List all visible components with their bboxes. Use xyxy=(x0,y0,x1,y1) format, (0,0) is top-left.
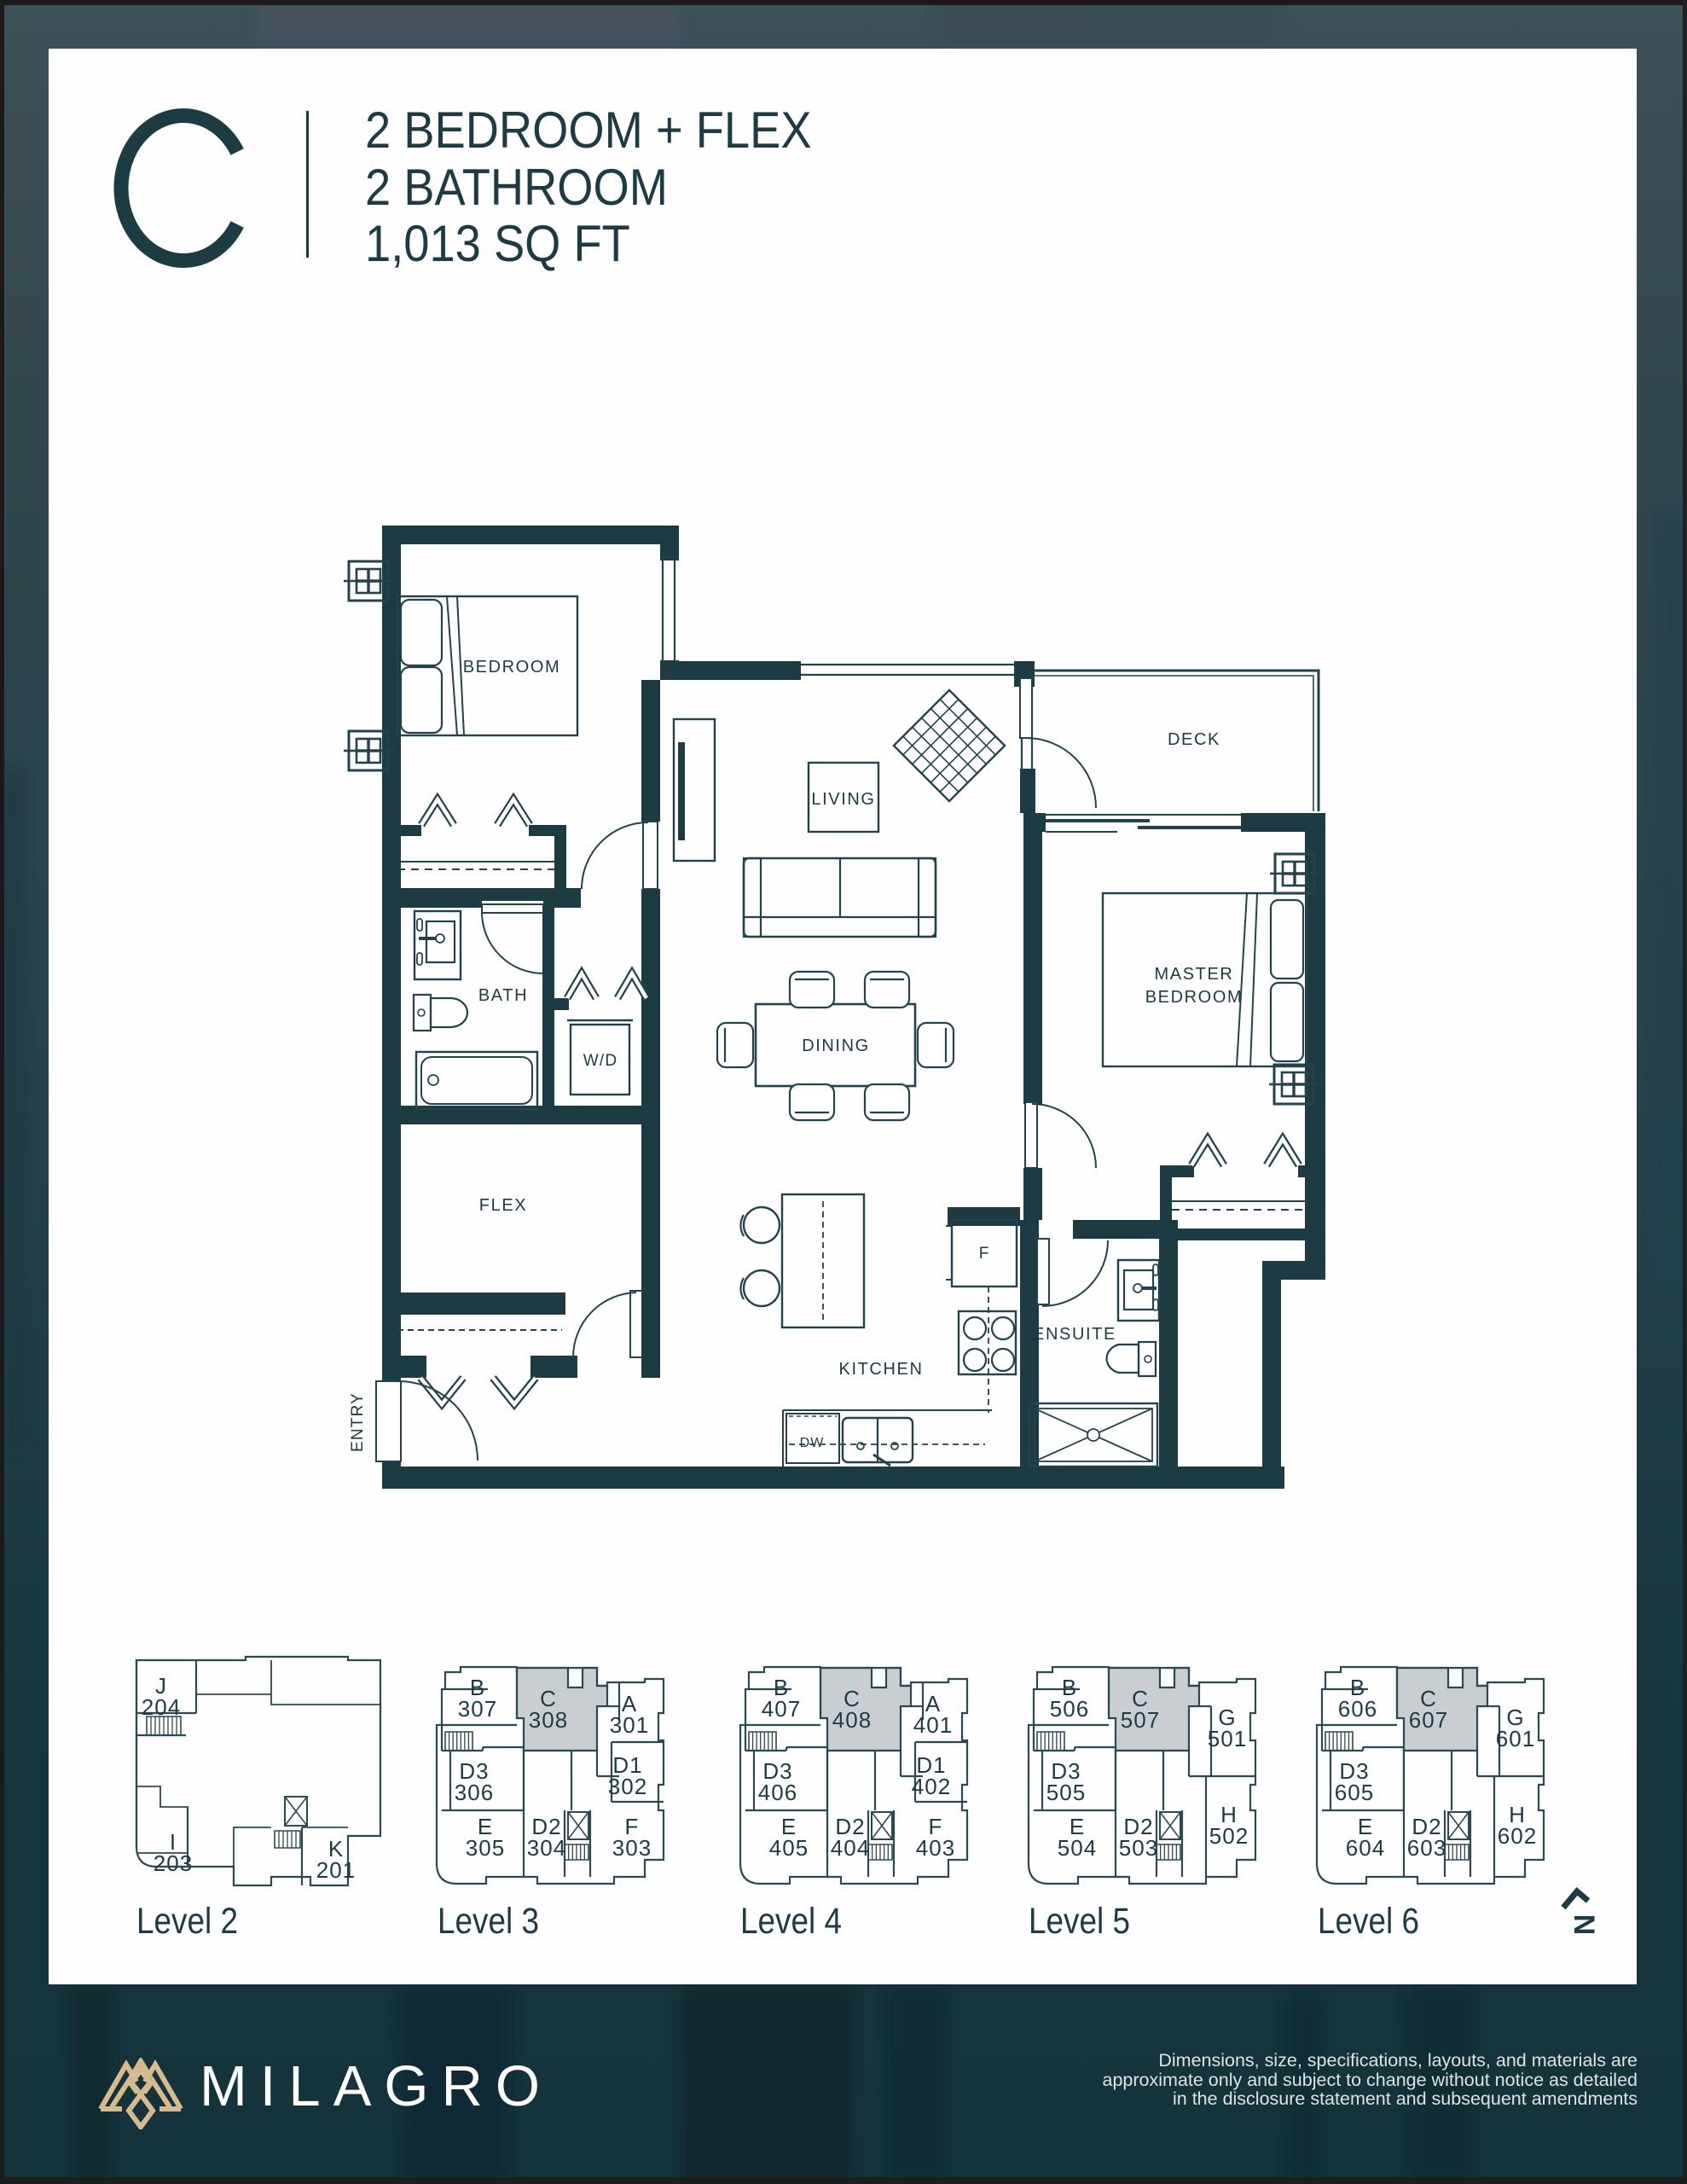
svg-text:306: 306 xyxy=(455,1780,494,1805)
svg-text:ENTRY: ENTRY xyxy=(349,1392,367,1452)
svg-text:201: 201 xyxy=(316,1857,356,1883)
svg-text:304: 304 xyxy=(527,1835,566,1861)
svg-text:603: 603 xyxy=(1407,1835,1446,1861)
svg-text:N: N xyxy=(1568,1914,1600,1936)
svg-text:502: 502 xyxy=(1209,1823,1249,1849)
svg-text:507: 507 xyxy=(1121,1707,1160,1733)
svg-text:404: 404 xyxy=(831,1835,870,1861)
svg-text:Level 2: Level 2 xyxy=(136,1901,238,1942)
svg-text:MASTER: MASTER xyxy=(1155,965,1234,984)
svg-text:LIVING: LIVING xyxy=(811,790,875,809)
svg-text:505: 505 xyxy=(1046,1780,1086,1805)
svg-text:403: 403 xyxy=(916,1835,955,1861)
svg-text:607: 607 xyxy=(1409,1707,1448,1733)
svg-text:504: 504 xyxy=(1058,1835,1097,1861)
svg-text:605: 605 xyxy=(1335,1780,1374,1805)
svg-text:FLEX: FLEX xyxy=(479,1196,527,1215)
svg-text:602: 602 xyxy=(1498,1823,1537,1849)
svg-text:604: 604 xyxy=(1346,1835,1385,1861)
svg-text:302: 302 xyxy=(608,1774,647,1799)
svg-text:401: 401 xyxy=(913,1712,953,1738)
svg-text:307: 307 xyxy=(458,1696,497,1722)
svg-text:BEDROOM: BEDROOM xyxy=(463,658,561,677)
svg-text:DECK: DECK xyxy=(1168,730,1220,749)
svg-text:503: 503 xyxy=(1119,1835,1158,1861)
svg-text:301: 301 xyxy=(610,1712,649,1738)
svg-text:305: 305 xyxy=(466,1835,505,1861)
svg-text:204: 204 xyxy=(142,1694,181,1720)
svg-text:408: 408 xyxy=(832,1707,872,1733)
svg-text:407: 407 xyxy=(762,1696,801,1722)
svg-text:W/D: W/D xyxy=(583,1052,618,1070)
svg-text:601: 601 xyxy=(1496,1726,1535,1751)
svg-text:406: 406 xyxy=(758,1780,797,1805)
svg-text:405: 405 xyxy=(769,1835,809,1861)
svg-text:402: 402 xyxy=(912,1774,951,1799)
svg-text:BEDROOM: BEDROOM xyxy=(1145,988,1244,1007)
svg-text:Level 3: Level 3 xyxy=(438,1901,539,1942)
svg-text:DW: DW xyxy=(800,1436,825,1450)
svg-text:Level 6: Level 6 xyxy=(1318,1901,1419,1942)
svg-text:506: 506 xyxy=(1050,1696,1089,1722)
svg-text:KITCHEN: KITCHEN xyxy=(839,1360,924,1379)
svg-text:BATH: BATH xyxy=(478,986,528,1005)
svg-text:DINING: DINING xyxy=(802,1037,870,1055)
svg-text:308: 308 xyxy=(529,1707,568,1733)
svg-text:Level 4: Level 4 xyxy=(740,1901,842,1942)
svg-text:501: 501 xyxy=(1208,1726,1247,1751)
svg-text:ENSUITE: ENSUITE xyxy=(1033,1325,1116,1344)
svg-text:Level 5: Level 5 xyxy=(1029,1901,1130,1942)
svg-text:606: 606 xyxy=(1338,1696,1377,1722)
svg-text:203: 203 xyxy=(154,1850,193,1876)
svg-text:303: 303 xyxy=(612,1835,652,1861)
svg-text:F: F xyxy=(979,1245,990,1263)
